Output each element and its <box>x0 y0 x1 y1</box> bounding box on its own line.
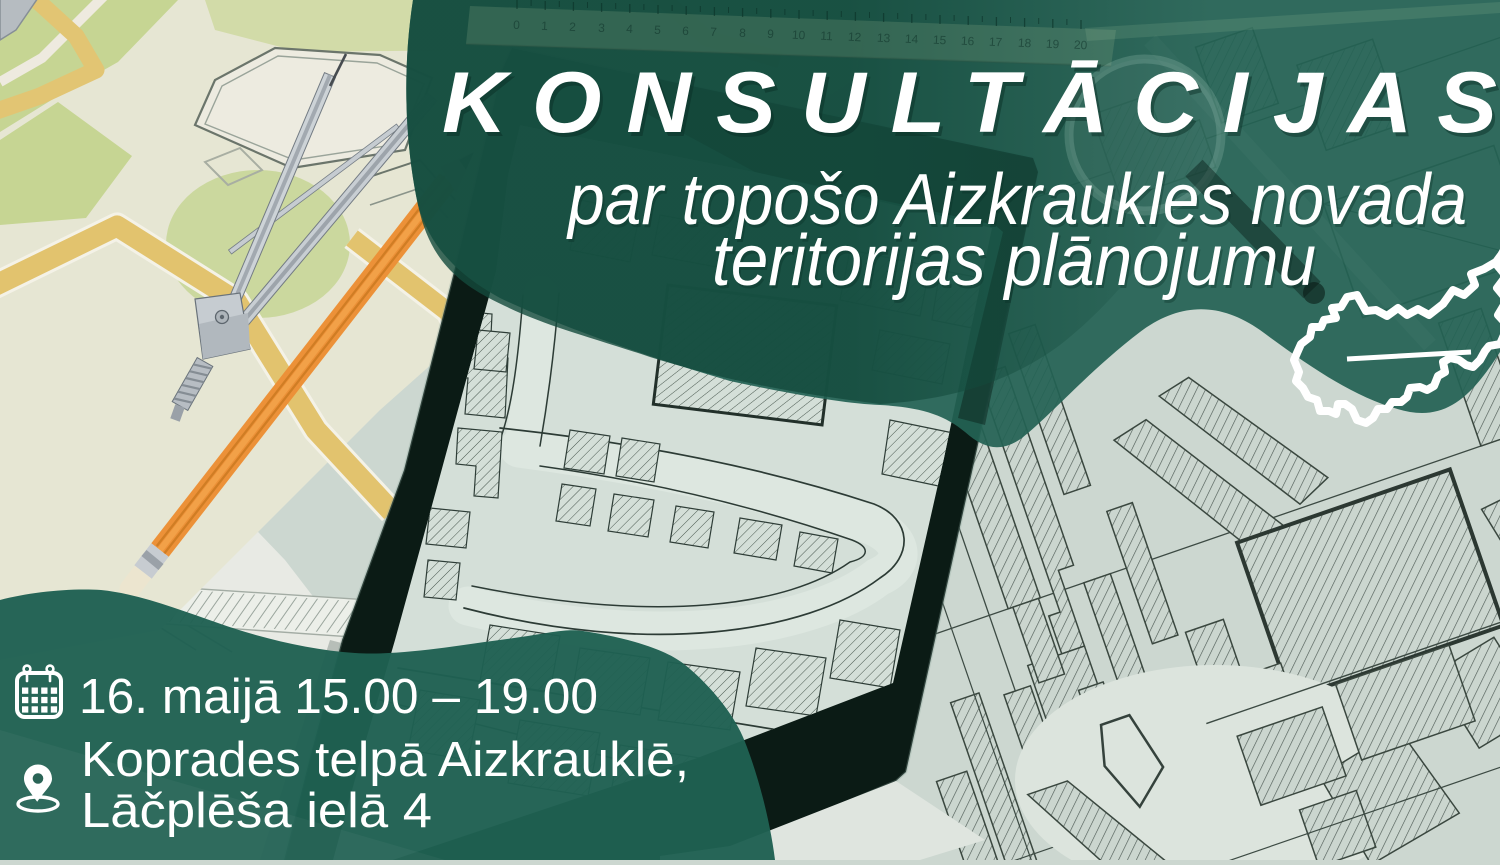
svg-text:2: 2 <box>569 20 577 34</box>
svg-text:0: 0 <box>513 18 521 32</box>
svg-text:17: 17 <box>989 35 1003 50</box>
svg-text:14: 14 <box>905 32 919 47</box>
svg-text:Koprades telpā Aizkrauklē,: Koprades telpā Aizkrauklē, <box>81 733 689 787</box>
svg-text:10: 10 <box>792 28 806 43</box>
svg-text:5: 5 <box>654 23 662 37</box>
svg-text:4: 4 <box>626 22 634 36</box>
svg-text:3: 3 <box>598 21 606 35</box>
svg-text:11: 11 <box>820 29 833 44</box>
svg-text:16. maijā 15.00 – 19.00: 16. maijā 15.00 – 19.00 <box>79 670 598 724</box>
svg-text:19: 19 <box>1046 37 1060 52</box>
svg-text:13: 13 <box>877 31 891 46</box>
svg-text:7: 7 <box>710 25 718 39</box>
svg-text:1: 1 <box>541 19 549 33</box>
svg-text:9: 9 <box>767 27 775 41</box>
svg-text:6: 6 <box>682 24 690 38</box>
svg-text:Lāčplēša ielā 4: Lāčplēša ielā 4 <box>81 784 432 838</box>
svg-text:KONSULTĀCIJAS: KONSULTĀCIJAS <box>442 55 1500 151</box>
svg-text:18: 18 <box>1018 36 1032 51</box>
svg-text:8: 8 <box>739 26 747 40</box>
svg-text:20: 20 <box>1074 38 1088 53</box>
svg-text:15: 15 <box>933 33 947 48</box>
svg-text:12: 12 <box>848 30 862 45</box>
svg-text:teritorijas plānojumu: teritorijas plānojumu <box>712 221 1316 301</box>
svg-text:16: 16 <box>961 34 975 49</box>
